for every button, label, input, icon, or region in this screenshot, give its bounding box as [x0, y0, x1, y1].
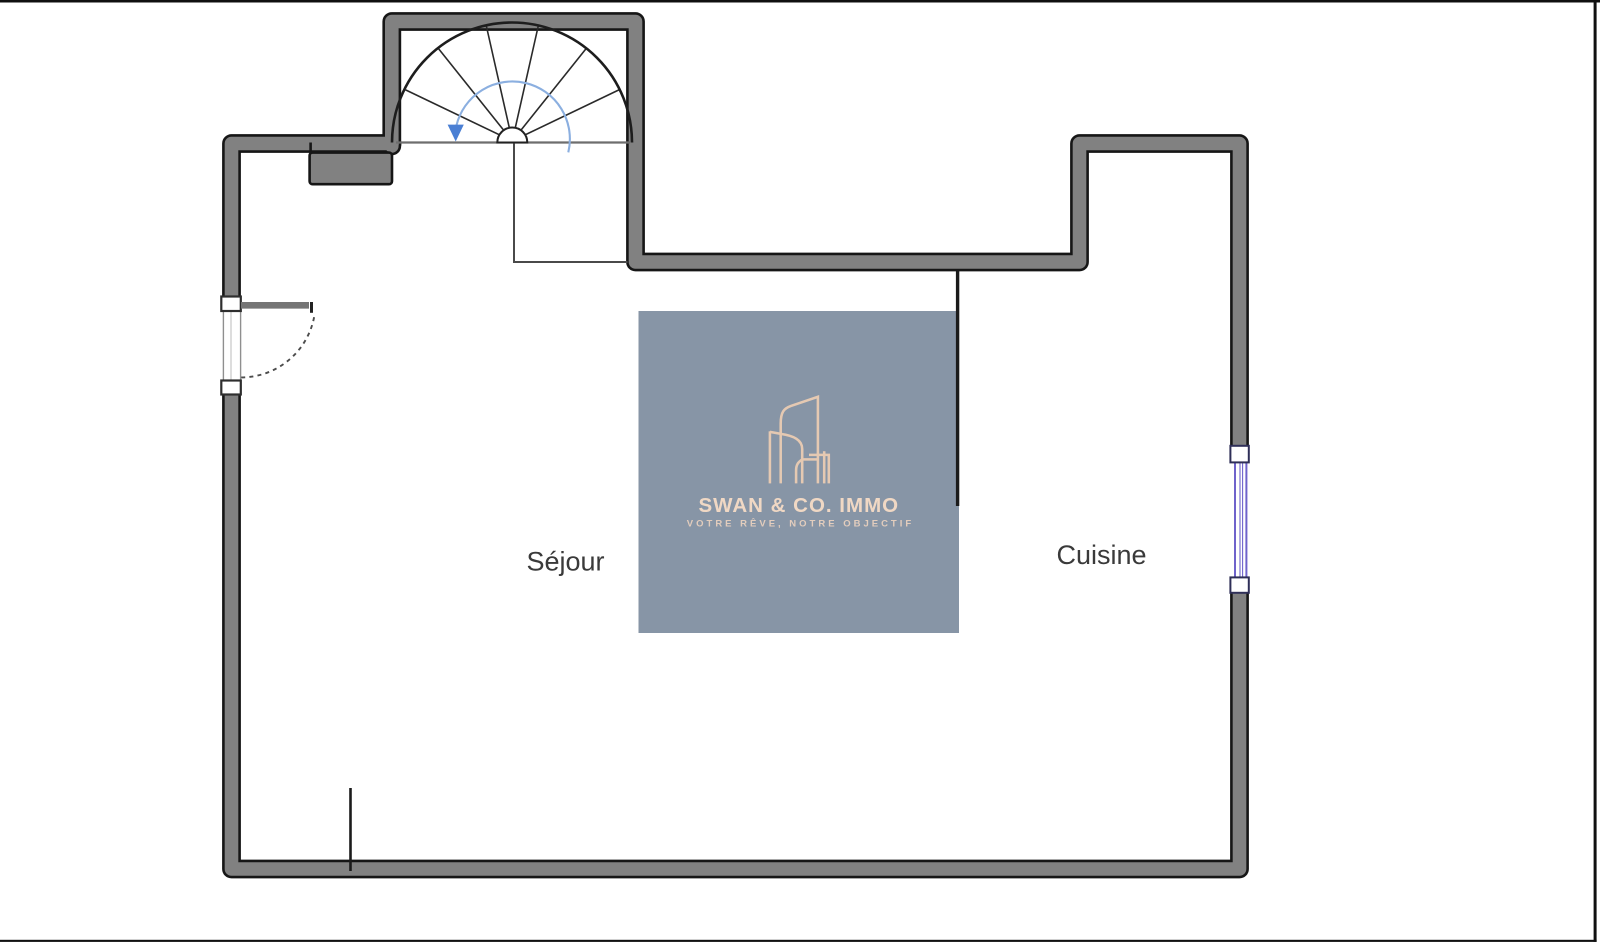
- svg-text:SWAN & CO. IMMO: SWAN & CO. IMMO: [698, 494, 899, 517]
- svg-text:VOTRE RÊVE, NOTRE OBJECTIF: VOTRE RÊVE, NOTRE OBJECTIF: [687, 518, 914, 530]
- svg-text:Cuisine: Cuisine: [1057, 540, 1147, 570]
- svg-text:Séjour: Séjour: [527, 547, 605, 577]
